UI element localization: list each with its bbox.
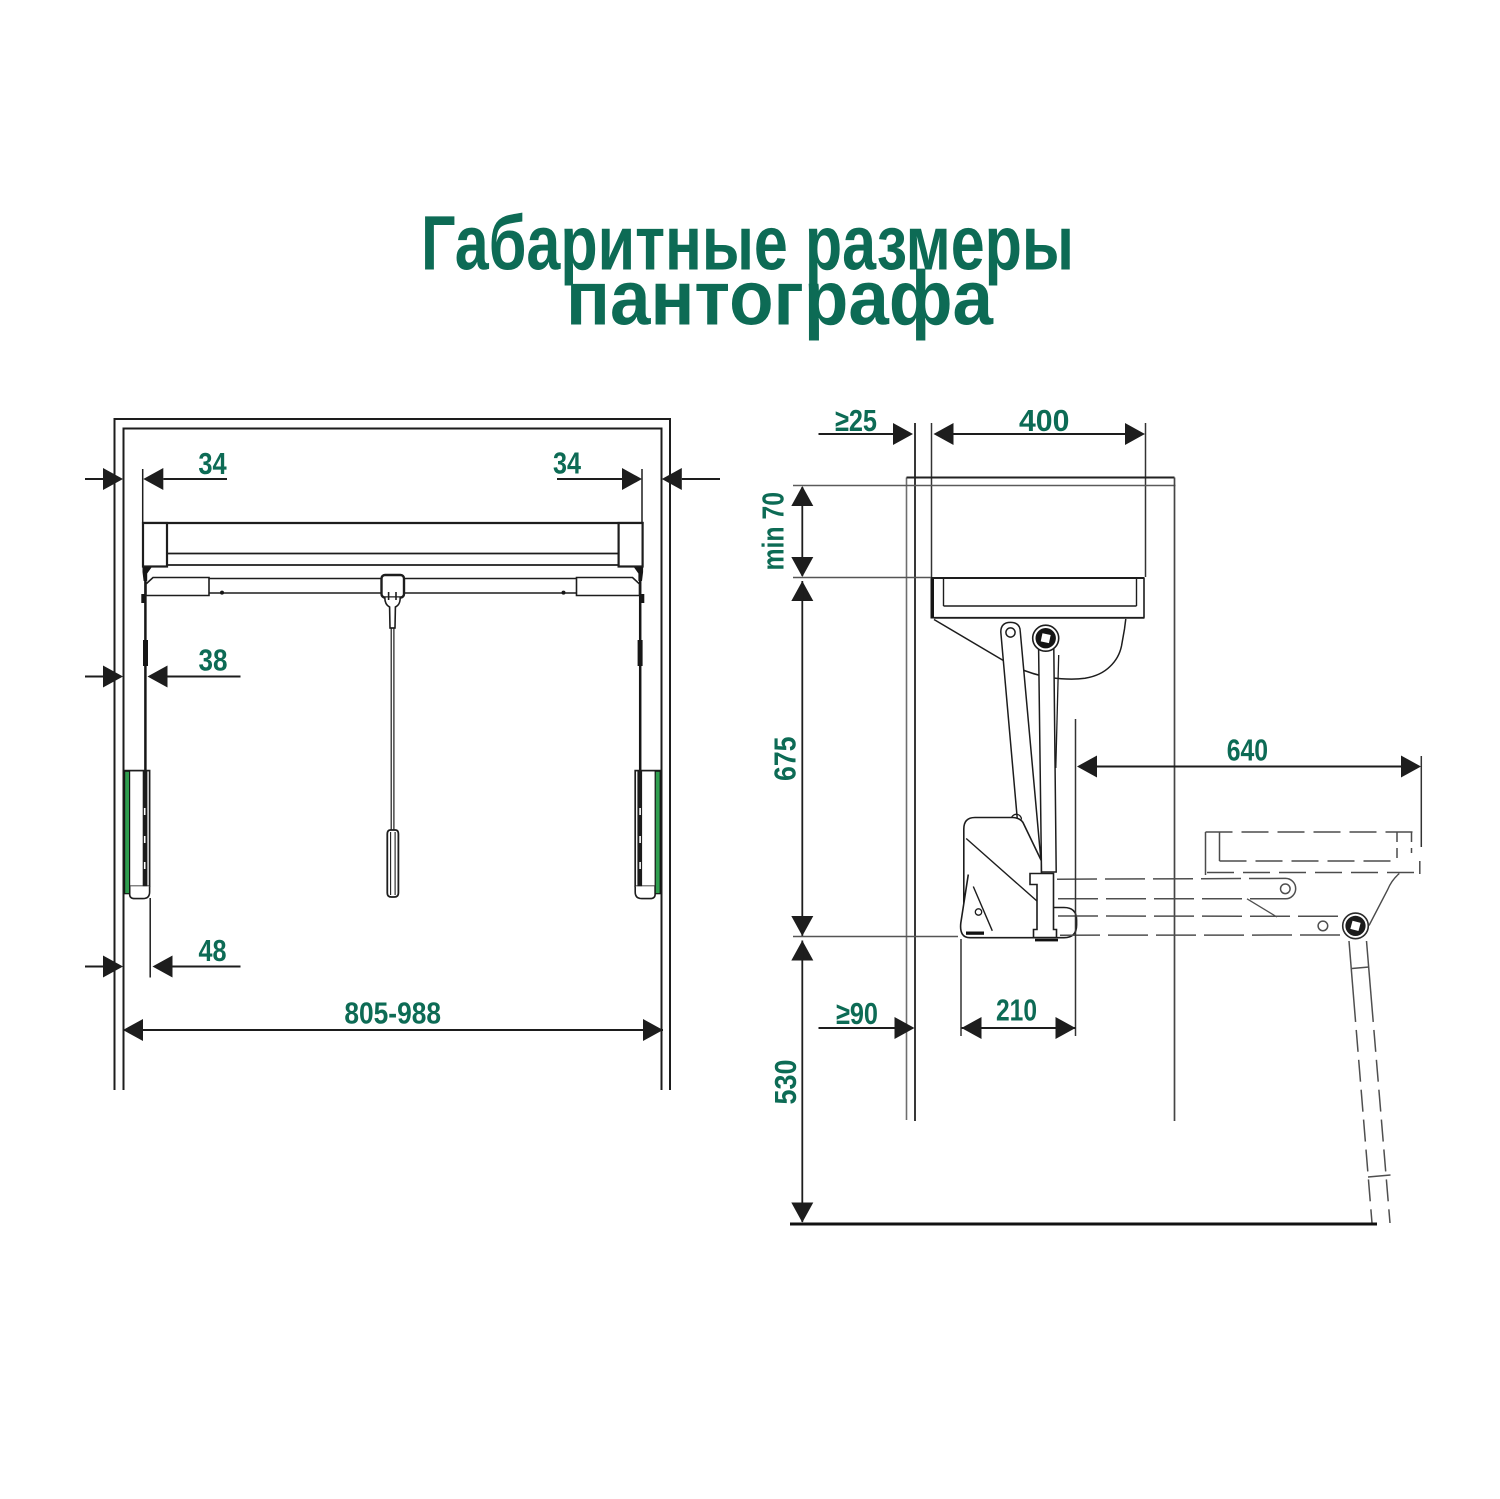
svg-text:675: 675 [768,737,803,782]
svg-text:48: 48 [199,933,227,968]
svg-text:640: 640 [1227,733,1268,768]
svg-text:min 70: min 70 [756,492,791,571]
svg-text:400: 400 [1019,403,1069,438]
svg-text:34: 34 [198,446,227,481]
svg-text:210: 210 [996,993,1037,1028]
svg-text:38: 38 [199,643,228,678]
svg-text:34: 34 [553,446,582,481]
svg-text:530: 530 [768,1060,803,1105]
svg-text:805-988: 805-988 [344,996,441,1031]
svg-text:≥90: ≥90 [836,996,878,1031]
svg-text:≥25: ≥25 [835,403,877,438]
svg-text:пантографа: пантографа [566,256,994,342]
